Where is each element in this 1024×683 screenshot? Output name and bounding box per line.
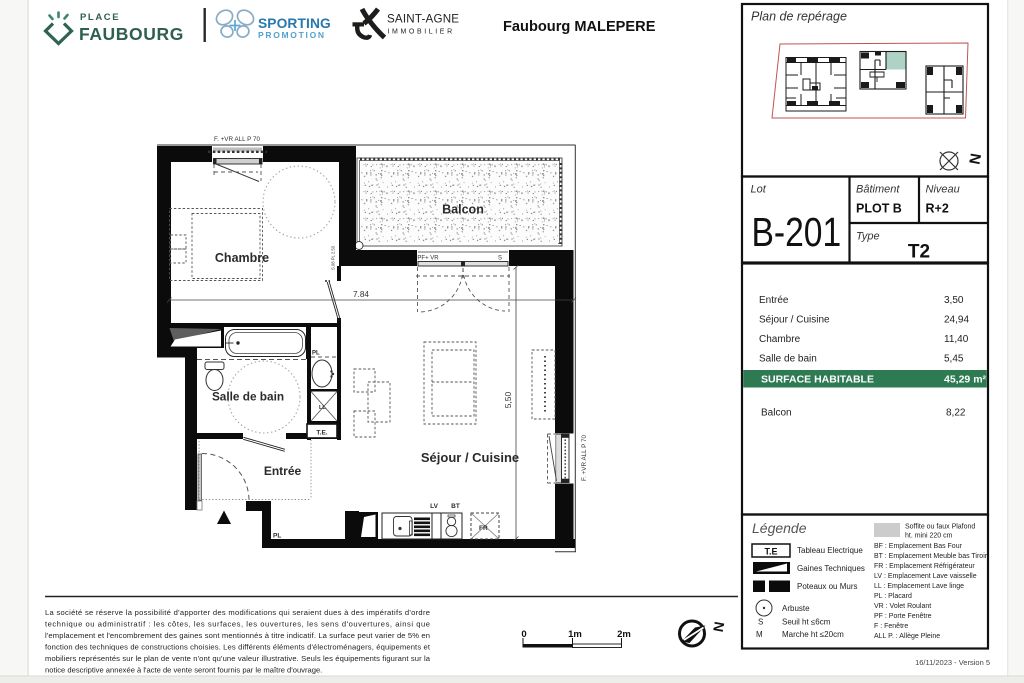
svg-text:BT: BT — [451, 503, 460, 510]
svg-text:Lot: Lot — [751, 184, 767, 196]
svg-text:l'emplacement et l'encombremen: l'emplacement et l'encombrement des gain… — [45, 631, 430, 640]
svg-text:Chambre: Chambre — [215, 251, 269, 265]
svg-text:PL: PL — [312, 351, 320, 357]
svg-text:Salle de bain: Salle de bain — [212, 390, 284, 404]
svg-text:Séjour / Cuisine: Séjour / Cuisine — [759, 315, 830, 326]
svg-text:Salle de bain: Salle de bain — [759, 354, 817, 365]
svg-text:Chambre: Chambre — [759, 334, 801, 345]
svg-text:FAUBOURG: FAUBOURG — [79, 24, 184, 44]
svg-text:Gaines Techniques: Gaines Techniques — [797, 564, 865, 573]
svg-text:notice descriptive annexée à l: notice descriptive annexée à l'acte de v… — [45, 666, 322, 675]
svg-text:S: S — [498, 256, 502, 262]
svg-text:Niveau: Niveau — [926, 184, 960, 196]
svg-text:IMMOBILIER: IMMOBILIER — [388, 29, 455, 36]
svg-text:S.08 PL 2.50: S.08 PL 2.50 — [331, 245, 336, 270]
svg-text:PROMOTION: PROMOTION — [258, 30, 326, 40]
svg-text:T.E: T.E — [764, 547, 777, 557]
svg-text:5,50: 5,50 — [503, 391, 513, 408]
svg-text:fonction des techniques de con: fonction des techniques de constructions… — [45, 643, 431, 652]
svg-text:Légende: Légende — [752, 520, 807, 536]
svg-text:PL: PL — [273, 533, 281, 540]
svg-text:PLOT B: PLOT B — [856, 202, 902, 216]
svg-text:T.E.: T.E. — [316, 430, 327, 437]
svg-text:8,22: 8,22 — [946, 408, 966, 419]
svg-text:Faubourg MALEPERE: Faubourg MALEPERE — [503, 19, 656, 35]
svg-text:ALL P. : Allège Pleine: ALL P. : Allège Pleine — [874, 633, 940, 640]
svg-text:Séjour / Cuisine: Séjour / Cuisine — [421, 450, 519, 465]
svg-text:24,94: 24,94 — [944, 315, 969, 326]
svg-text:PF : Porte Fenêtre: PF : Porte Fenêtre — [874, 613, 932, 620]
svg-text:SAINT-AGNE: SAINT-AGNE — [387, 13, 459, 26]
svg-text:Tableau Electrique: Tableau Electrique — [797, 546, 863, 555]
svg-text:N: N — [710, 620, 728, 633]
svg-text:Marche ht ≤20cm: Marche ht ≤20cm — [782, 630, 844, 639]
svg-text:1m: 1m — [568, 629, 582, 640]
svg-text:Balcon: Balcon — [442, 203, 484, 217]
svg-text:2m: 2m — [617, 629, 631, 640]
svg-text:BF : Emplacement Bas Four: BF : Emplacement Bas Four — [874, 543, 963, 550]
svg-text:45,29 m²: 45,29 m² — [944, 374, 987, 386]
svg-text:VR : Volet Roulant: VR : Volet Roulant — [874, 603, 931, 610]
svg-text:Bâtiment: Bâtiment — [856, 184, 900, 196]
svg-text:PLACE: PLACE — [80, 12, 120, 23]
svg-text:ht. mini 220 cm: ht. mini 220 cm — [905, 533, 953, 540]
svg-text:N: N — [965, 152, 984, 166]
svg-text:F. +VR ALL P 70: F. +VR ALL P 70 — [581, 434, 588, 481]
svg-text:Arbuste: Arbuste — [782, 604, 810, 613]
svg-text:Entrée: Entrée — [759, 295, 789, 306]
svg-text:SURFACE HABITABLE: SURFACE HABITABLE — [761, 374, 874, 386]
svg-text:FR: FR — [479, 525, 488, 532]
svg-text:LL: LL — [319, 405, 326, 411]
svg-text:Soffite ou faux Plafond: Soffite ou faux Plafond — [905, 524, 975, 531]
svg-text:B-201: B-201 — [752, 209, 842, 255]
svg-text:Seuil ht ≤6cm: Seuil ht ≤6cm — [782, 618, 831, 627]
svg-text:Entrée: Entrée — [264, 464, 302, 478]
svg-text:FR : Emplacement Réfrigérateur: FR : Emplacement Réfrigérateur — [874, 563, 975, 570]
svg-text:Balcon: Balcon — [761, 408, 792, 419]
svg-text:M: M — [756, 630, 763, 639]
svg-text:7.84: 7.84 — [353, 290, 369, 299]
svg-text:PL : Placard: PL : Placard — [874, 593, 912, 600]
svg-text:S: S — [758, 618, 763, 627]
svg-text:LL : Emplacement Lave linge: LL : Emplacement Lave linge — [874, 583, 964, 590]
svg-text:mobiliers représentés sur le p: mobiliers représentés sur le plan de ven… — [45, 654, 431, 663]
svg-text:16/11/2023 - Version 5: 16/11/2023 - Version 5 — [915, 658, 990, 667]
svg-text:LV : Emplacement Lave vaissell: LV : Emplacement Lave vaisselle — [874, 573, 977, 580]
svg-text:F : Fenêtre: F : Fenêtre — [874, 623, 908, 630]
svg-text:BT : Emplacement Meuble bas Ti: BT : Emplacement Meuble bas Tiroir — [874, 553, 988, 560]
svg-text:F. +VR ALL P 70: F. +VR ALL P 70 — [214, 136, 261, 143]
svg-text:LV: LV — [430, 503, 438, 510]
svg-text:5,45: 5,45 — [944, 354, 964, 365]
svg-text:Plan de repérage: Plan de repérage — [751, 10, 847, 24]
svg-text:T2: T2 — [908, 242, 930, 263]
svg-text:0: 0 — [521, 629, 526, 640]
svg-text:3,50: 3,50 — [944, 295, 964, 306]
svg-text:PF+ VR: PF+ VR — [417, 256, 439, 262]
svg-text:11,40: 11,40 — [944, 334, 969, 345]
svg-text:SPORTING: SPORTING — [258, 16, 331, 31]
svg-text:La société se réserve la possi: La société se réserve la possibilité d'a… — [45, 608, 430, 617]
svg-text:R+2: R+2 — [926, 202, 949, 216]
svg-text:technique ou administratif : l: technique ou administratif : les côtes, … — [45, 620, 430, 629]
svg-text:Poteaux ou Murs: Poteaux ou Murs — [797, 582, 857, 591]
svg-text:Type: Type — [856, 231, 880, 243]
